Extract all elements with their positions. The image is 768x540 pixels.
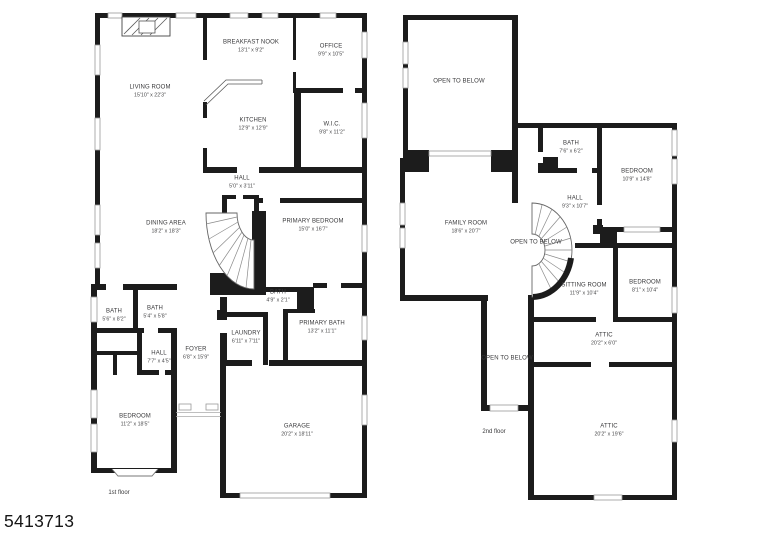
room-label-breakfast-nook: BREAKFAST NOOK13'1" x 9'2": [223, 39, 279, 56]
room-label-garage: GARAGE20'2" x 18'11": [281, 423, 313, 440]
room-label-bath-2f: BATH7'6" x 6'2": [559, 140, 582, 157]
room-label-hall-2: HALL7'7" x 4'5": [147, 350, 170, 367]
room-label-family-room: FAMILY ROOM18'6" x 20'7": [445, 220, 487, 237]
room-label-office: OFFICE9'9" x 10'5": [318, 43, 344, 60]
room-label-open-to-below-3: OPEN TO BELOW: [481, 355, 532, 364]
room-label-foyer: FOYER6'8" x 15'9": [183, 346, 209, 363]
mls-number: 5413713: [4, 511, 74, 532]
room-label-primary-bath: PRIMARY BATH13'2" x 11'1": [299, 320, 345, 337]
floor1-label: 1st floor: [108, 490, 129, 496]
room-label-bath-1: BATH5'6" x 8'2": [102, 308, 125, 325]
room-label-bedroom-1f: BEDROOM11'2" x 18'5": [119, 413, 151, 430]
room-label-bedroom-2f-1: BEDROOM10'9" x 14'8": [621, 168, 653, 185]
kitchen-counter: [204, 80, 262, 105]
floor2-walls: [400, 15, 677, 500]
bay-window: [112, 469, 158, 476]
room-label-laundry: LAUNDRY6'11" x 7'11": [231, 330, 260, 347]
room-label-bath-2: BATH5'4" x 5'8": [143, 305, 166, 322]
room-label-living-room: LIVING ROOM15'10" x 22'3": [129, 84, 170, 101]
room-label-kitchen: KITCHEN12'9" x 12'9": [238, 117, 267, 134]
room-label-primary-bedroom: PRIMARY BEDROOM15'0" x 16'7": [282, 218, 343, 235]
room-label-hall-2f: HALL9'3" x 10'7": [562, 195, 588, 212]
entry-steps: [176, 413, 221, 417]
room-label-attic-2: ATTIC20'2" x 19'6": [594, 423, 623, 440]
floor-plan-page: LIVING ROOM15'10" x 22'3" BREAKFAST NOOK…: [0, 0, 768, 540]
floor-plan-svg: [0, 0, 768, 540]
fireplace: [122, 17, 170, 36]
room-label-bedroom-2f-2: BEDROOM8'1" x 10'4": [629, 279, 661, 296]
room-label-open-to-below-2: OPEN TO BELOW: [510, 239, 561, 248]
room-label-sitting-room: SITTING ROOM11'9" x 10'4": [561, 282, 606, 299]
room-label-attic-1: ATTIC20'2" x 6'0": [591, 332, 617, 349]
room-label-dining-area: DINING AREA18'2" x 18'3": [146, 220, 186, 237]
room-label-hall-1: HALL5'0" x 3'11": [229, 175, 255, 192]
room-label-open-to-below-1: OPEN TO BELOW: [433, 78, 484, 87]
room-label-wic: W.I.C.9'8" x 11'2": [319, 121, 345, 138]
room-label-bath-3: BATH4'9" x 2'1": [266, 289, 289, 306]
floor2-label: 2nd floor: [482, 429, 505, 435]
